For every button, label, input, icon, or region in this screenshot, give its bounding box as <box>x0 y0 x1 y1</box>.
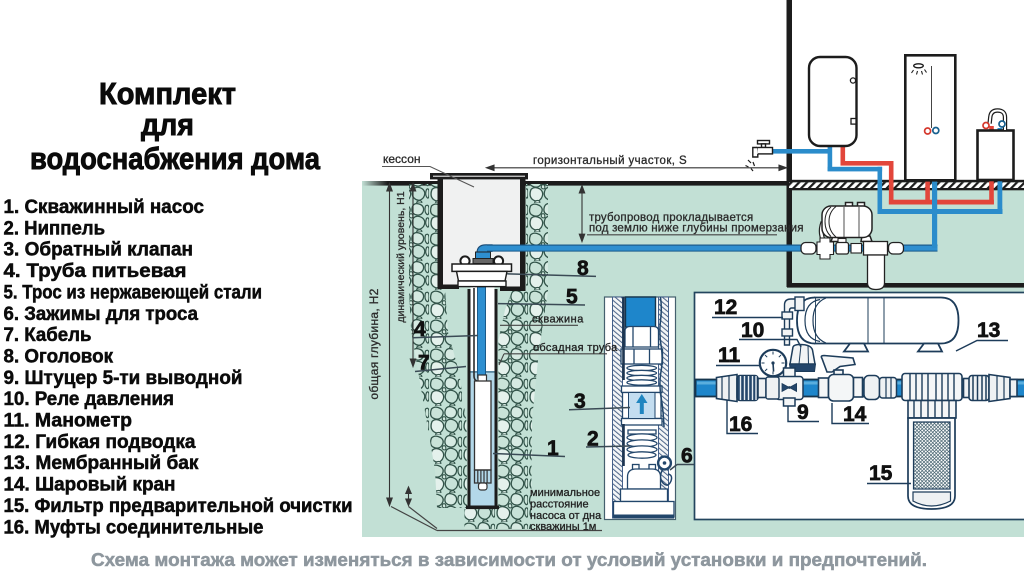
svg-text:3: 3 <box>574 390 586 413</box>
svg-text:15. Фильтр предварительной очи: 15. Фильтр предварительной очистки <box>4 496 353 517</box>
svg-text:минимальное: минимальное <box>530 487 600 499</box>
svg-text:14: 14 <box>843 403 867 426</box>
svg-text:1: 1 <box>547 437 559 460</box>
svg-text:6. Зажимы для троса: 6. Зажимы для троса <box>4 304 199 325</box>
svg-text:водоснабжения дома: водоснабжения дома <box>30 141 321 176</box>
svg-text:8. Оголовок: 8. Оголовок <box>4 347 114 368</box>
svg-text:11. Манометр: 11. Манометр <box>4 411 133 432</box>
svg-text:для: для <box>141 107 194 142</box>
svg-text:2. Ниппель: 2. Ниппель <box>4 218 106 239</box>
svg-text:5. Трос из нержавеющей стали: 5. Трос из нержавеющей стали <box>4 282 263 303</box>
svg-text:16. Муфты соединительные: 16. Муфты соединительные <box>4 517 264 538</box>
svg-text:10: 10 <box>741 319 764 342</box>
svg-text:под землю ниже глубины про: под землю ниже глубины промерзания <box>589 223 804 235</box>
svg-text:11: 11 <box>718 344 741 367</box>
svg-text:динамический уровень, Н1: динамический уровень, Н1 <box>395 191 407 322</box>
svg-text:13. Мембранный бак: 13. Мембранный бак <box>4 453 199 474</box>
svg-text:12: 12 <box>714 296 737 319</box>
svg-text:16: 16 <box>729 413 752 436</box>
svg-text:12. Гибкая подводка: 12. Гибкая подводка <box>4 432 196 453</box>
svg-text:13: 13 <box>977 319 1000 342</box>
svg-text:14. Шаровый кран: 14. Шаровый кран <box>4 475 176 496</box>
svg-text:1. Скважинный насос: 1. Скважинный насос <box>4 197 205 218</box>
svg-text:2: 2 <box>587 428 599 451</box>
svg-text:обсадная труба: обсадная труба <box>533 342 618 354</box>
svg-text:4. Труба питьевая: 4. Труба питьевая <box>4 261 187 282</box>
svg-text:общая глубина, Н2: общая глубина, Н2 <box>367 288 381 399</box>
svg-text:8: 8 <box>577 257 589 280</box>
svg-text:6: 6 <box>681 445 693 468</box>
svg-text:кессон: кессон <box>383 152 421 166</box>
svg-text:10. Реле давления: 10. Реле давления <box>4 389 175 410</box>
svg-text:скважина: скважина <box>532 314 584 326</box>
svg-text:7. Кабель: 7. Кабель <box>4 325 92 346</box>
svg-text:3. Обратный клапан: 3. Обратный клапан <box>4 240 194 261</box>
svg-text:Схема монтажа может изменяться: Схема монтажа может изменяться в зависим… <box>91 550 927 570</box>
svg-text:горизонтальный участок, S: горизонтальный участок, S <box>533 155 687 167</box>
svg-text:5: 5 <box>566 286 578 309</box>
svg-text:скважины 1м: скважины 1м <box>530 521 596 533</box>
svg-text:9: 9 <box>797 401 809 424</box>
svg-text:9. Штуцер 5-ти выводной: 9. Штуцер 5-ти выводной <box>4 368 243 389</box>
svg-text:Комплект: Комплект <box>99 76 236 111</box>
svg-text:4: 4 <box>414 318 426 341</box>
svg-text:15: 15 <box>869 462 893 485</box>
svg-text:расстояние: расстояние <box>530 499 589 511</box>
svg-text:7: 7 <box>418 352 430 375</box>
